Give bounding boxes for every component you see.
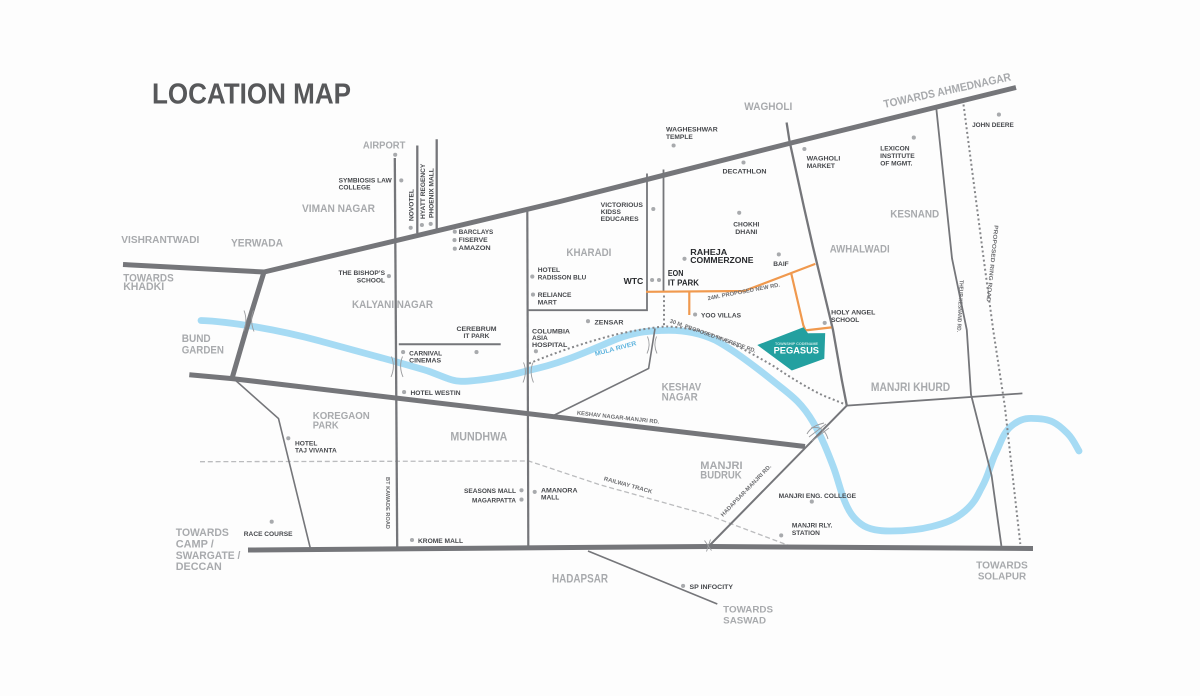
svg-text:PEGASUS: PEGASUS <box>774 345 819 355</box>
svg-text:DHANI: DHANI <box>735 229 757 236</box>
svg-text:RACE COURSE: RACE COURSE <box>244 531 293 538</box>
svg-text:COLLEGE: COLLEGE <box>339 185 371 192</box>
svg-text:KALYANI NAGAR: KALYANI NAGAR <box>352 299 433 311</box>
svg-text:TEMPLE: TEMPLE <box>666 134 693 141</box>
svg-text:AWHALWADI: AWHALWADI <box>830 243 890 255</box>
svg-text:CARNIVAL: CARNIVAL <box>409 350 442 357</box>
svg-text:DECATHLON: DECATHLON <box>723 168 767 175</box>
svg-text:GARDEN: GARDEN <box>182 345 224 357</box>
svg-text:EON: EON <box>668 269 684 278</box>
svg-text:MANJRI KHURD: MANJRI KHURD <box>871 380 951 394</box>
svg-text:CHOKHI: CHOKHI <box>733 221 759 228</box>
svg-text:KROME MALL: KROME MALL <box>418 538 463 545</box>
svg-text:SOLAPUR: SOLAPUR <box>978 572 1027 583</box>
svg-text:THE BISHOP’S: THE BISHOP’S <box>338 270 385 277</box>
svg-text:BT KAWADE ROAD: BT KAWADE ROAD <box>384 477 390 529</box>
svg-text:CEREBRUM: CEREBRUM <box>457 326 498 333</box>
svg-text:HOTEL WESTIN: HOTEL WESTIN <box>411 390 461 397</box>
svg-text:RELIANCE: RELIANCE <box>538 292 572 299</box>
svg-text:SEASONS MALL: SEASONS MALL <box>464 488 516 495</box>
svg-text:CAMP /: CAMP / <box>176 539 214 551</box>
svg-text:KIDSS: KIDSS <box>601 209 622 216</box>
svg-text:SWARGATE /: SWARGATE / <box>176 550 241 562</box>
svg-text:HYATT REGENCY: HYATT REGENCY <box>420 163 427 219</box>
svg-text:PARK: PARK <box>313 420 340 431</box>
svg-text:BARCLAYS: BARCLAYS <box>459 229 494 236</box>
svg-text:LOCATION MAP: LOCATION MAP <box>152 79 351 111</box>
svg-text:BUND: BUND <box>182 333 211 345</box>
svg-text:BAIF: BAIF <box>773 261 788 268</box>
svg-text:HADAPSAR: HADAPSAR <box>552 572 608 586</box>
svg-text:OF MGMT.: OF MGMT. <box>880 160 912 167</box>
svg-text:KHADKI: KHADKI <box>123 281 164 293</box>
svg-text:HOTEL: HOTEL <box>295 440 317 447</box>
svg-text:TOWARDS: TOWARDS <box>176 527 229 539</box>
svg-text:DECCAN: DECCAN <box>176 561 222 573</box>
svg-text:SYMBIOSIS LAW: SYMBIOSIS LAW <box>339 177 393 184</box>
svg-text:YERWADA: YERWADA <box>231 237 283 249</box>
svg-text:HOSPITAL: HOSPITAL <box>532 342 567 349</box>
svg-text:IT PARK: IT PARK <box>464 333 490 340</box>
svg-text:HOTEL: HOTEL <box>538 267 560 274</box>
svg-text:MARKET: MARKET <box>807 163 835 170</box>
svg-text:KHARADI: KHARADI <box>566 247 611 259</box>
svg-text:IT PARK: IT PARK <box>668 278 699 287</box>
svg-text:WAGHOLI: WAGHOLI <box>807 155 841 162</box>
svg-text:AMANORA: AMANORA <box>541 487 578 494</box>
svg-text:LEXICON: LEXICON <box>880 146 910 153</box>
svg-text:SP INFOCITY: SP INFOCITY <box>690 584 734 591</box>
svg-text:VICTORIOUS: VICTORIOUS <box>601 202 644 209</box>
svg-text:FISERVE: FISERVE <box>459 237 489 244</box>
svg-text:STATION: STATION <box>792 530 820 537</box>
svg-text:MALL: MALL <box>541 495 559 502</box>
svg-text:NOVOTEL: NOVOTEL <box>409 189 416 221</box>
svg-text:SCHOOL: SCHOOL <box>831 317 859 324</box>
svg-text:RADISSON BLU: RADISSON BLU <box>538 274 587 281</box>
svg-text:CINEMAS: CINEMAS <box>409 358 442 365</box>
svg-text:BUDRUK: BUDRUK <box>700 470 741 482</box>
svg-text:MAGARPATTA: MAGARPATTA <box>472 498 516 505</box>
svg-text:WAGHOLI: WAGHOLI <box>744 101 792 113</box>
svg-text:WTC: WTC <box>624 277 644 286</box>
svg-text:SASWAD: SASWAD <box>723 615 766 626</box>
svg-text:MANJRI ENG. COLLEGE: MANJRI ENG. COLLEGE <box>779 493 857 500</box>
svg-text:MUNDHWA: MUNDHWA <box>450 430 507 444</box>
svg-text:PHOENIX MALL: PHOENIX MALL <box>429 168 436 218</box>
svg-text:JOHN DEERE: JOHN DEERE <box>972 122 1014 129</box>
svg-text:TOWARDS: TOWARDS <box>976 561 1028 572</box>
svg-text:KESNAND: KESNAND <box>890 209 939 221</box>
svg-text:MANJRI RLY.: MANJRI RLY. <box>792 522 833 529</box>
svg-text:AMAZON: AMAZON <box>459 245 491 252</box>
svg-text:MART: MART <box>538 300 557 307</box>
svg-text:COMMERZONE: COMMERZONE <box>690 255 753 265</box>
svg-text:SCHOOL: SCHOOL <box>357 278 385 285</box>
svg-text:NAGAR: NAGAR <box>662 391 698 403</box>
svg-text:TOWARDS: TOWARDS <box>723 605 773 616</box>
svg-text:HOLY ANGEL: HOLY ANGEL <box>831 309 875 316</box>
svg-text:AIRPORT: AIRPORT <box>363 141 406 152</box>
svg-text:INSTITUTE: INSTITUTE <box>880 153 915 160</box>
svg-text:EDUCARES: EDUCARES <box>601 216 640 223</box>
svg-text:VISHRANTWADI: VISHRANTWADI <box>121 235 199 246</box>
svg-text:TAJ VIVANTA: TAJ VIVANTA <box>295 448 337 455</box>
svg-text:ZENSAR: ZENSAR <box>595 319 624 326</box>
svg-text:WAGHESHWAR: WAGHESHWAR <box>666 127 718 134</box>
svg-text:VIMAN NAGAR: VIMAN NAGAR <box>302 203 375 215</box>
svg-text:YOO VILLAS: YOO VILLAS <box>701 312 742 319</box>
